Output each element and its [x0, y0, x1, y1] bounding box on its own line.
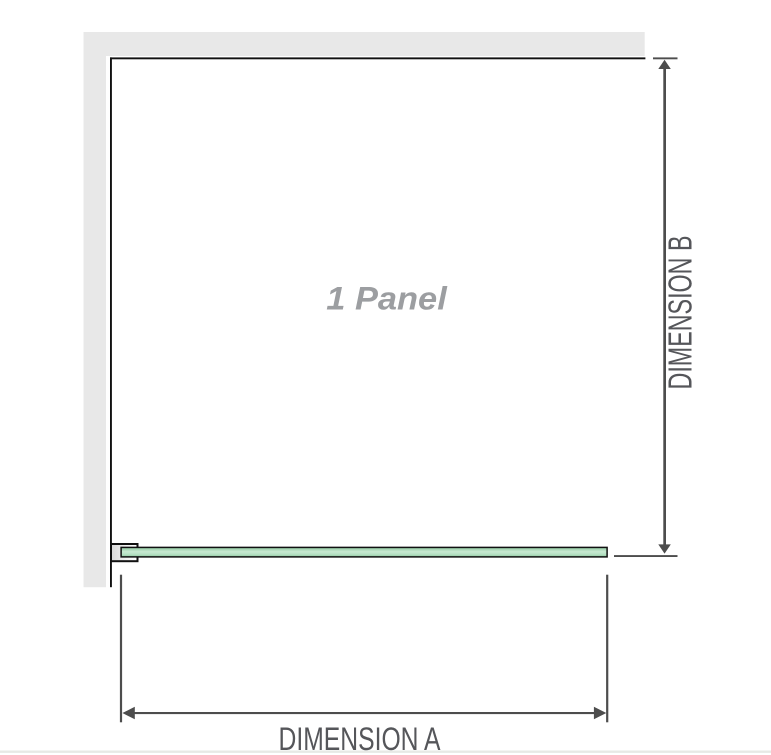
- svg-text:DIMENSION A: DIMENSION A: [279, 721, 442, 755]
- svg-text:1 Panel: 1 Panel: [326, 281, 448, 317]
- svg-text:DIMENSION B: DIMENSION B: [662, 236, 699, 390]
